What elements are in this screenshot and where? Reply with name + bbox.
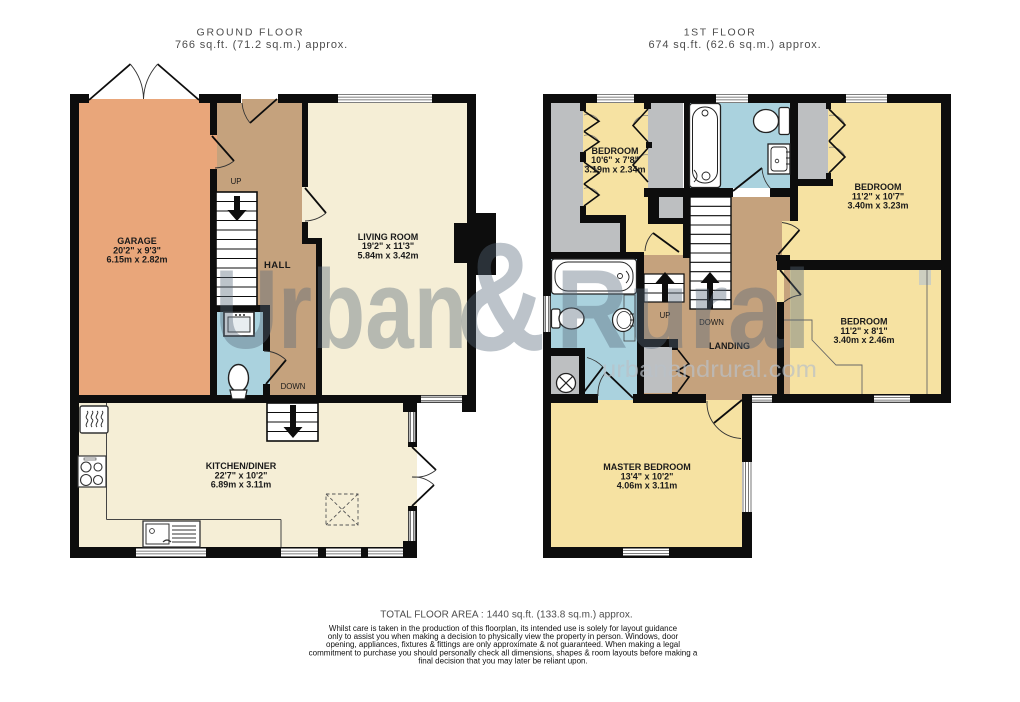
- svg-text:UP: UP: [231, 177, 242, 186]
- svg-text:Rural: Rural: [556, 247, 811, 372]
- svg-text:BEDROOM10'6" x 7'8"3.19m x 2: BEDROOM10'6" x 7'8"3.19m x 2.34m: [584, 146, 645, 175]
- svg-text:DOWN: DOWN: [281, 382, 306, 391]
- svg-text:&: &: [456, 210, 546, 383]
- svg-text:BEDROOM11'2" x 8'1"3.40m x 2: BEDROOM11'2" x 8'1"3.40m x 2.46m: [833, 317, 894, 346]
- svg-text:766 sq.ft. (71.2 sq.m.) approx: 766 sq.ft. (71.2 sq.m.) approx.: [175, 39, 348, 51]
- svg-text:TOTAL FLOOR AREA : 1440 sq.ft.: TOTAL FLOOR AREA : 1440 sq.ft. (133.8 sq…: [380, 610, 633, 621]
- svg-text:KITCHEN/DINER22'7" x 10'2"6.8: KITCHEN/DINER22'7" x 10'2"6.89m x 3.11m: [206, 461, 277, 490]
- svg-text:urbanandrural.com: urbanandrural.com: [602, 356, 817, 382]
- svg-text:1ST FLOOR: 1ST FLOOR: [684, 27, 757, 39]
- svg-text:674 sq.ft. (62.6 sq.m.) approx: 674 sq.ft. (62.6 sq.m.) approx.: [648, 39, 821, 51]
- svg-text:BEDROOM11'2" x 10'7"3.40m x: BEDROOM11'2" x 10'7"3.40m x 3.23m: [847, 182, 908, 211]
- svg-text:GROUND FLOOR: GROUND FLOOR: [197, 27, 305, 39]
- svg-text:Urban: Urban: [215, 247, 467, 372]
